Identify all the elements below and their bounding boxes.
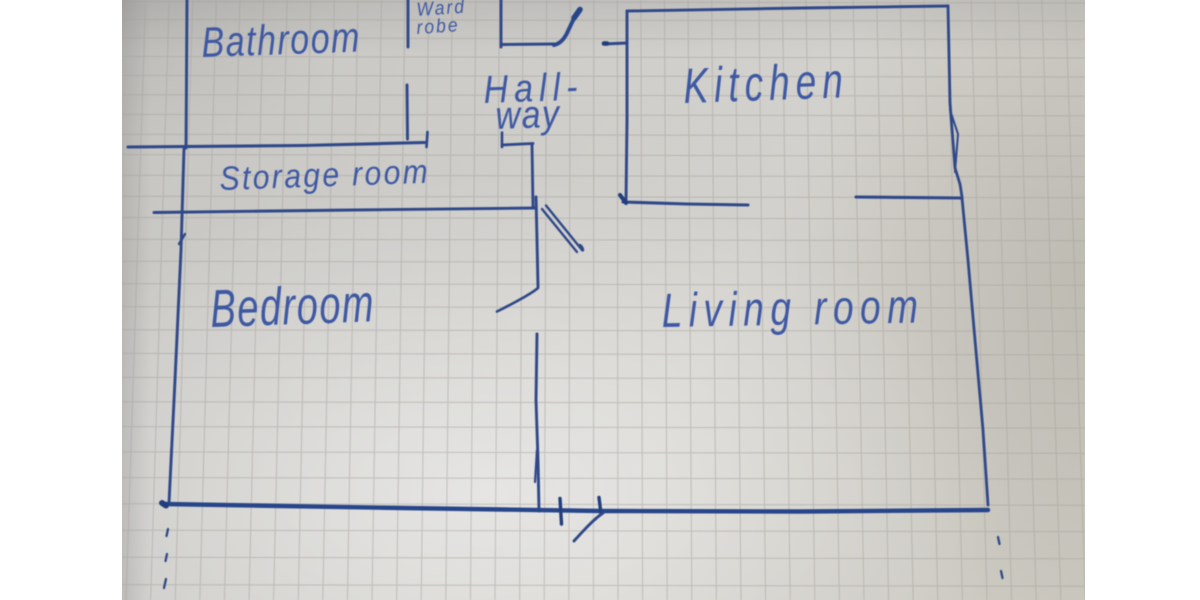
svg-text:Bedroom: Bedroom bbox=[209, 273, 376, 339]
svg-text:Kitchen: Kitchen bbox=[682, 53, 849, 114]
svg-text:Storage room: Storage room bbox=[219, 152, 431, 197]
svg-text:Living room: Living room bbox=[661, 280, 925, 338]
svg-text:Bathroom: Bathroom bbox=[201, 14, 362, 67]
svg-text:way: way bbox=[495, 92, 562, 138]
svg-text:robe: robe bbox=[416, 13, 460, 38]
